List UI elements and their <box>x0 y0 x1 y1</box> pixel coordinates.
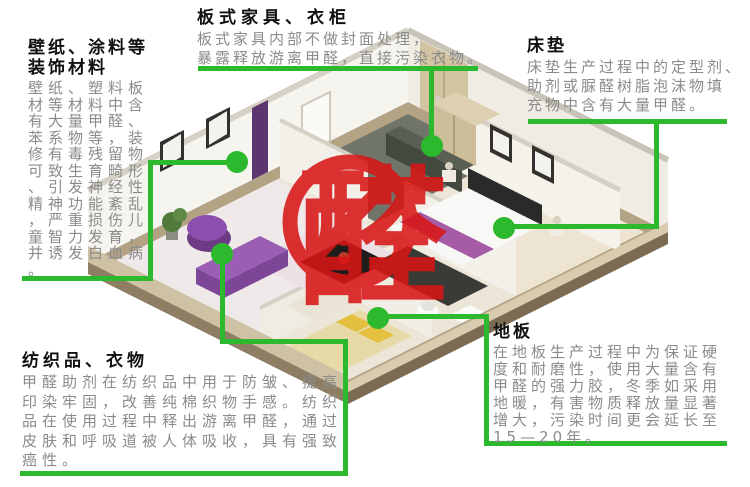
wallpaper-callout-dot <box>226 151 248 173</box>
textile-callout-line <box>220 339 348 344</box>
callout-title: 床垫 <box>527 36 749 56</box>
mattress-callout-dot <box>493 217 515 239</box>
callout-textile: 纺织品、衣物 甲醛助剂在纺织品中用于防皱、提高 印染牢固，改善纯棉织物手感。纺织… <box>22 351 352 471</box>
mattress-callout-line <box>654 119 659 229</box>
panel-callout-line <box>429 66 434 146</box>
callout-body: 床垫生产过程中的定型剂、 助剂或脲醛树脂泡沫物填 充物中含有大量甲醛。 <box>527 58 749 115</box>
floor-callout-line <box>484 314 489 445</box>
callout-title: 板式家具、衣柜 <box>197 8 507 28</box>
formaldehyde-infographic: 醛 板式家具、衣柜 板式家具内部不做封面处理， 暴露释放游离甲醛，直接污染衣物。… <box>0 0 750 487</box>
textile-callout-underline <box>20 471 348 476</box>
purple-accent-stripe <box>252 100 268 180</box>
formaldehyde-character: 醛 <box>297 154 447 328</box>
mattress-callout-underline <box>528 119 727 124</box>
callout-title: 壁纸、涂料等 装饰材料 <box>28 38 156 78</box>
callout-panel-furniture: 板式家具、衣柜 板式家具内部不做封面处理， 暴露释放游离甲醛，直接污染衣物。 <box>197 8 507 68</box>
callout-title: 地板 <box>493 322 733 342</box>
floor-callout-line <box>378 314 489 319</box>
callout-body: 在地板生产过程中为保证硬 度和耐磨性，使用大量含有 甲醛的强力胶，冬季如采用 地… <box>493 344 733 446</box>
panel-callout-dot <box>421 135 443 157</box>
callout-body: 甲醛助剂在纺织品中用于防皱、提高 印染牢固，改善纯棉织物手感。纺织 品在使用过程… <box>22 373 352 471</box>
callout-floor: 地板 在地板生产过程中为保证硬 度和耐磨性，使用大量含有 甲醛的强力胶，冬季如采… <box>493 322 733 446</box>
textile-callout-line <box>220 254 225 344</box>
callout-wallpaper: 壁纸、涂料等 装饰材料 壁纸、塑料板 材等材料中含 有大量甲醛、 苯系物等，装 … <box>28 38 156 278</box>
callout-title: 纺织品、衣物 <box>22 351 352 371</box>
callout-mattress: 床垫 床垫生产过程中的定型剂、 助剂或脲醛树脂泡沫物填 充物中含有大量甲醛。 <box>527 36 749 115</box>
formaldehyde-mark: 醛 <box>290 154 447 328</box>
mattress-callout-line <box>505 224 659 229</box>
callout-body: 板式家具内部不做封面处理， 暴露释放游离甲醛，直接污染衣物。 <box>197 30 507 68</box>
wallpaper-callout-line <box>148 160 238 165</box>
callout-body: 壁纸、塑料板 材等材料中含 有大量甲醛、 苯系物等，装 修有毒残留物 可致生育畸… <box>28 80 156 278</box>
